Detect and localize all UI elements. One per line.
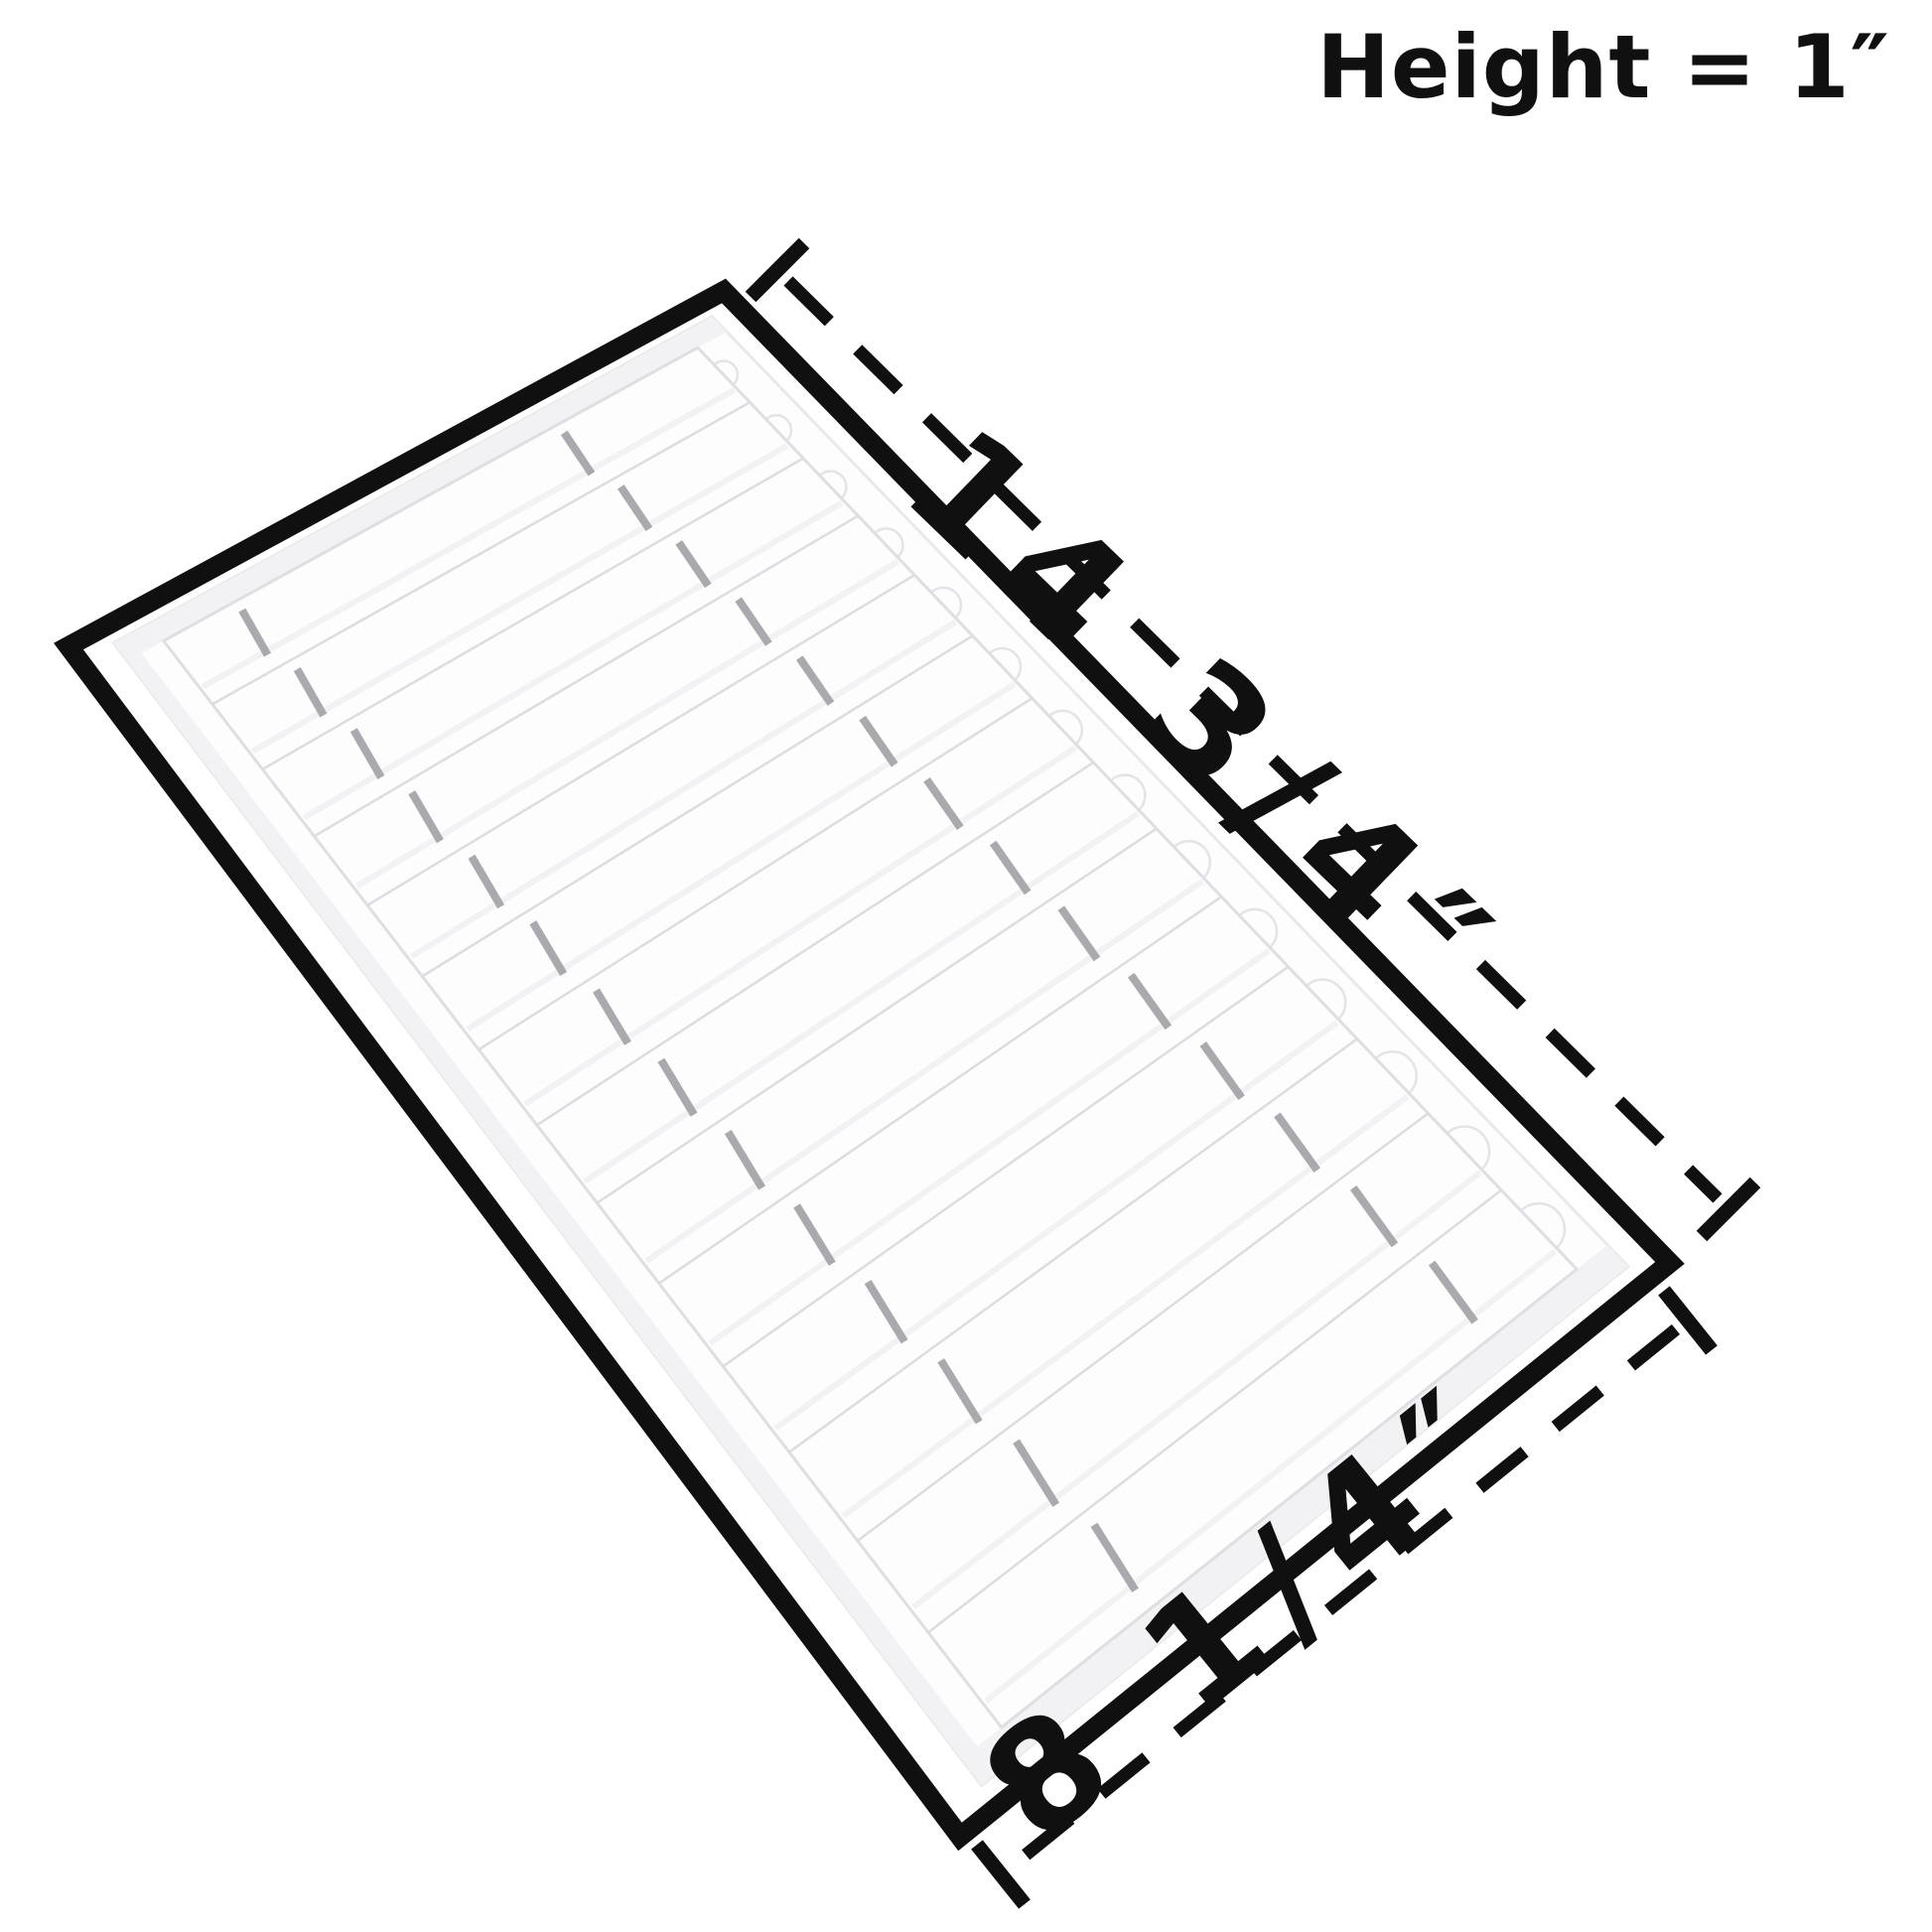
product-dimension-diagram: 14 3/4″ 8 1/4″ Height = 1″ [0,0,1932,1932]
tray-illustration [69,291,1670,1837]
diagram-canvas: 14 3/4″ 8 1/4″ Height = 1″ [0,0,1932,1932]
width-dimension-end-tick [977,1845,1025,1904]
height-dimension-label: Height = 1″ [1316,16,1890,118]
